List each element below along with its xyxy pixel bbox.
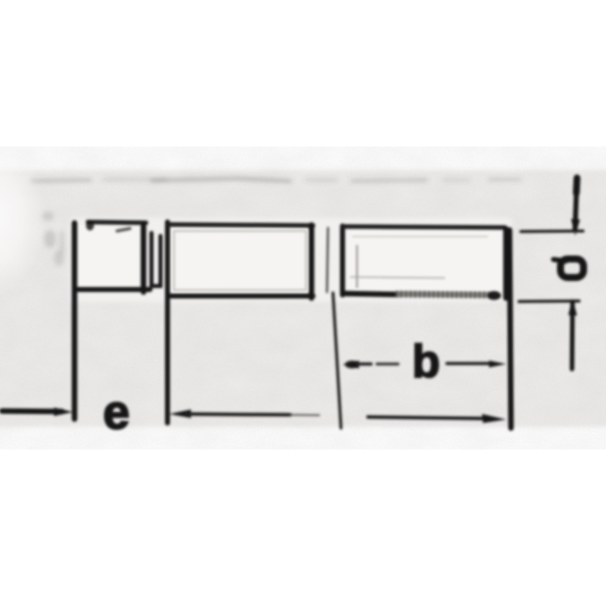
svg-text:b: b — [412, 335, 440, 387]
svg-text:e: e — [103, 387, 130, 440]
